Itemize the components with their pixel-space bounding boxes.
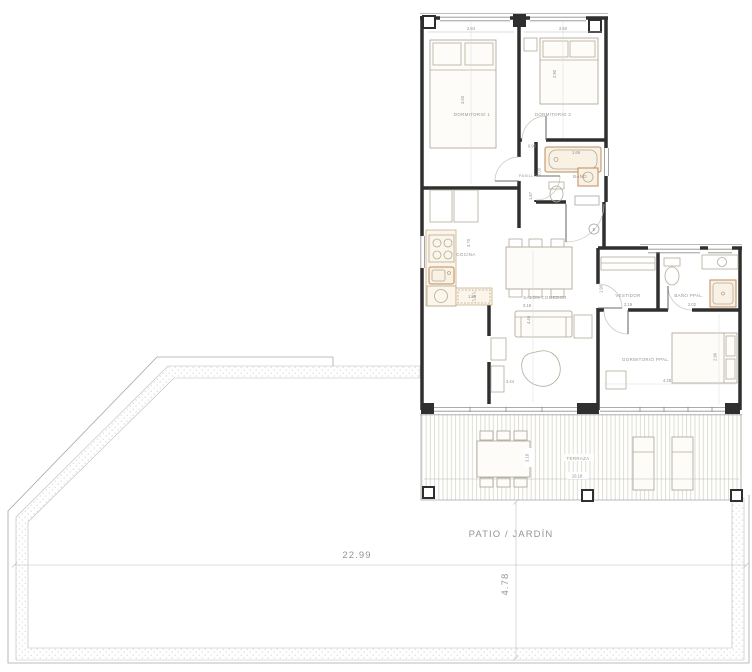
glass-wall-dorm-ppal (600, 408, 725, 412)
door-entrance (566, 196, 604, 242)
dorm1-width-dim: 2.84 (467, 26, 476, 31)
patio-fence-line (8, 357, 749, 663)
terraza-width-dim: 10.18 (572, 474, 583, 479)
bano-ppal-label: BAÑO PPAL. (674, 293, 703, 298)
cocina-label: COCINA (456, 252, 475, 257)
pasillo-label: PASILLO (519, 174, 537, 178)
patio-wall-band (16, 366, 744, 660)
room-cocina: COCINA 3.70 1.80 (426, 230, 492, 306)
mullion-pillar (513, 14, 526, 27)
bano-ppal-width-dim: 2.02 (688, 302, 697, 307)
patio-boundary (8, 357, 749, 663)
glass-wall-salon (434, 408, 577, 412)
window-kitchen (421, 236, 425, 268)
dorm2-height-dim: 2.90 (552, 69, 557, 78)
room-pasillo: PASILLO (519, 174, 537, 178)
dorm2-label: DORMITORIO 2 (535, 112, 572, 117)
window-bano (605, 148, 609, 176)
vestidor-height-dim: 1.90 (599, 284, 604, 293)
fence-post (582, 490, 593, 501)
wardrobe (601, 257, 655, 270)
corner-pillar (423, 16, 435, 28)
dorm1-label: DORMITORIO 1 (454, 112, 491, 117)
dorm-ppal-height-dim: 2.96 (713, 352, 718, 361)
salon-sofa-dim: 3.44 (506, 379, 515, 384)
bed-dorm2 (524, 38, 598, 104)
armchair (574, 315, 592, 338)
room-bano-ppal: BAÑO PPAL. 2.02 (664, 255, 738, 307)
shower (710, 280, 736, 307)
cocina-width-dim: 1.80 (468, 294, 477, 299)
coffee-table (522, 351, 561, 386)
salon-width-dim: 3.19 (523, 303, 532, 308)
door-dorm1 (495, 157, 519, 181)
tv-unit (491, 338, 506, 360)
tv-unit (491, 366, 504, 392)
salon-label: SALÓN COMEDOR (523, 295, 567, 300)
floor-plan-page: TERRAZA 10.18 3.18 (0, 0, 752, 672)
patio-label: PATIO / JARDÍN (469, 529, 554, 540)
room-dormitorio-1: 2.84 3.60 DORMITORIO 1 (428, 22, 514, 222)
window-bano-ppal-2 (708, 249, 732, 253)
toilet (549, 182, 564, 202)
dorm-ppal-width-dim: 4.28 (663, 378, 672, 383)
entrance-marker-letter: E (593, 227, 596, 232)
floor-plan: TERRAZA 10.18 3.18 (0, 0, 752, 672)
patio-width-dim: 22.99 (342, 550, 371, 561)
corner-pillar (589, 20, 601, 32)
bano-dim-a: 0.90 (528, 144, 537, 149)
sofa (515, 311, 572, 337)
mullion-pillar (421, 403, 434, 414)
dorm2-width-dim: 2.60 (559, 26, 568, 31)
terrace: TERRAZA 10.18 3.18 (421, 414, 742, 501)
bed-dorm1 (430, 40, 496, 148)
cocina-height-dim: 3.70 (466, 238, 471, 247)
closet-unit (430, 190, 452, 222)
window-bano-ppal (648, 249, 700, 253)
patio-height-dim: 4.78 (500, 573, 511, 596)
sink-ppal (702, 255, 738, 269)
dining-table (506, 239, 572, 297)
patio-dimensions: PATIO / JARDÍN 22.99 4.78 (12, 500, 749, 661)
kitchen-sink (429, 267, 454, 284)
door-bano (536, 176, 560, 200)
chair (606, 371, 626, 389)
terraza-label: TERRAZA (567, 456, 590, 461)
closet-unit (454, 190, 478, 222)
dorm-ppal-label: DORMITORIO PPAL. (622, 357, 669, 362)
dorm1-height-dim: 3.60 (460, 95, 465, 104)
patio-height-dim-line (514, 500, 519, 661)
bed-ppal (672, 333, 737, 383)
door-dorm2 (522, 116, 546, 140)
sun-lounger (633, 437, 654, 490)
vestidor-width-dim: 2.19 (624, 302, 633, 307)
toilet-ppal (664, 258, 680, 285)
bano-label: BAÑO (573, 174, 587, 179)
room-bano: BAÑO 1.66 0.90 2.00 1.87 (528, 144, 601, 203)
room-salon-comedor: SALÓN COMEDOR 3.19 4.46 3.44 (491, 239, 592, 402)
room-vestidor: VESTIDOR 2.19 1.90 (599, 257, 656, 307)
window-dorm2 (530, 17, 586, 21)
fence-post (731, 490, 742, 501)
patio-width-dim-line (12, 563, 749, 568)
bano-dim-c: 1.87 (528, 191, 533, 200)
terraza-table-dim: 3.18 (525, 453, 530, 462)
room-dormitorio-ppal: DORMITORIO PPAL. 4.28 2.96 (604, 314, 737, 404)
room-dormitorio-2: 2.60 2.90 DORMITORIO 2 (524, 22, 602, 138)
sun-lounger (672, 437, 693, 490)
bano-tub-dim: 1.66 (572, 150, 581, 155)
terrace-table (477, 431, 530, 487)
fence-post (423, 487, 434, 498)
salon-height-dim: 4.46 (526, 315, 531, 324)
window-dorm1 (440, 17, 510, 21)
vestidor-label: VESTIDOR (615, 293, 640, 298)
mullion-pillar (725, 403, 740, 414)
door-dorm-ppal (604, 310, 628, 334)
entrance-marker: E (589, 224, 599, 234)
entrance-step (575, 196, 599, 205)
mullion-pillar (577, 403, 599, 414)
bano-dim-b: 2.00 (537, 167, 542, 176)
